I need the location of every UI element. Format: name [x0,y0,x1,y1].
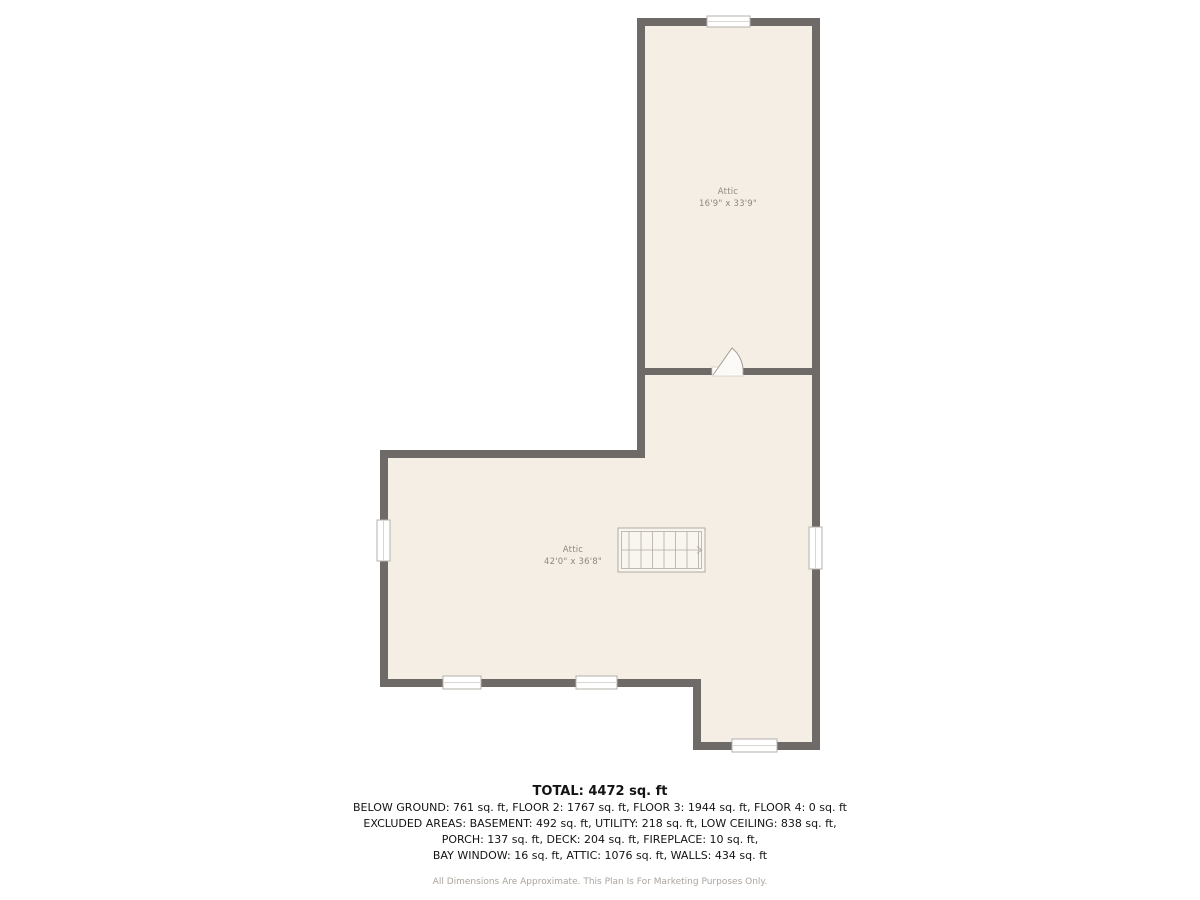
excluded-areas-line-3: BAY WINDOW: 16 sq. ft, ATTIC: 1076 sq. f… [0,848,1200,864]
window-bottom-left [443,676,481,689]
floor-areas-line: BELOW GROUND: 761 sq. ft, FLOOR 2: 1767 … [0,800,1200,816]
floor-plan-page: Attic 16'9" x 33'9" Attic 42'0" x 36'8" … [0,0,1200,900]
room-label-attic-lower: Attic 42'0" x 36'8" [544,544,602,568]
excluded-areas-line-2: PORCH: 137 sq. ft, DECK: 204 sq. ft, FIR… [0,832,1200,848]
window-top [707,16,750,27]
floor-area [380,18,820,750]
room-name: Attic [699,186,757,198]
window-left [377,520,390,561]
staircase-symbol [618,528,705,572]
disclaimer: All Dimensions Are Approximate. This Pla… [0,876,1200,888]
room-name: Attic [544,544,602,556]
window-bottom-center [576,676,617,689]
window-bottom-right [732,739,777,752]
room-label-attic-upper: Attic 16'9" x 33'9" [699,186,757,210]
window-right [809,527,822,569]
excluded-areas-line-1: EXCLUDED AREAS: BASEMENT: 492 sq. ft, UT… [0,816,1200,832]
total-area: TOTAL: 4472 sq. ft [0,784,1200,800]
room-dimensions: 42'0" x 36'8" [544,556,602,568]
area-summary: TOTAL: 4472 sq. ft BELOW GROUND: 761 sq.… [0,784,1200,888]
floor-plan [0,0,1200,900]
room-dimensions: 16'9" x 33'9" [699,198,757,210]
